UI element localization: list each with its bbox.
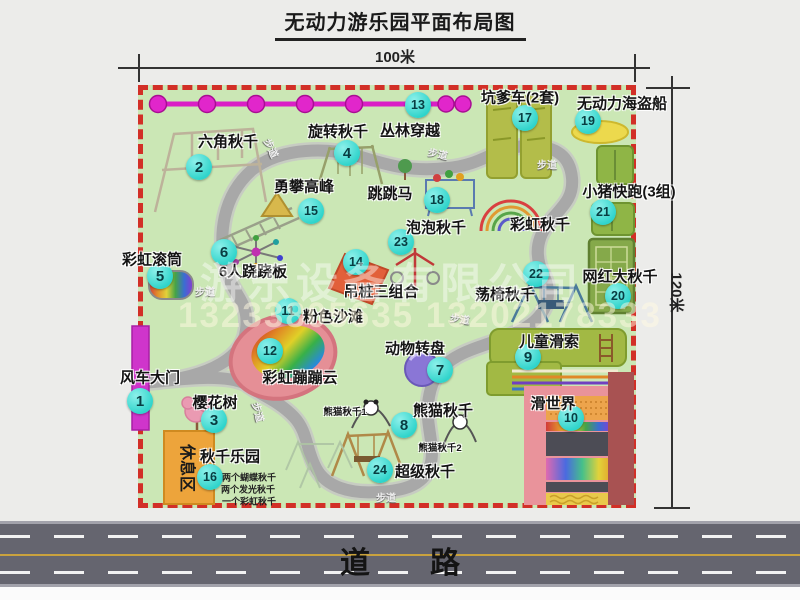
path-label: 步道 — [537, 157, 557, 172]
path-label: 步道 — [195, 284, 215, 299]
map-label: 泡泡秋千 — [406, 217, 466, 238]
map-label: 彩虹秋千 — [510, 214, 570, 235]
badge-14: 14 — [343, 249, 369, 275]
map-label: 熊猫秋千2 — [418, 440, 461, 454]
path-label: 步道 — [376, 490, 396, 505]
badge-12: 12 — [257, 338, 283, 364]
map-label: 一个彩虹秋千 — [222, 495, 276, 508]
badge-11: 11 — [275, 298, 301, 324]
page-title: 无动力游乐园平面布局图 — [0, 6, 800, 41]
map-label: 勇攀高峰 — [274, 176, 334, 197]
map-label: 6人跷跷板 — [219, 261, 287, 282]
map-label: 粉色沙滩 — [303, 306, 363, 327]
map-label: 小猪快跑(3组) — [582, 181, 675, 202]
road-label: 道 路 — [0, 538, 800, 582]
map-label: 无动力海盗船 — [577, 93, 667, 114]
badge-21: 21 — [590, 199, 616, 225]
map-label: 秋千乐园 — [200, 446, 260, 467]
dimension-tick-bottom — [654, 507, 690, 509]
badge-18: 18 — [424, 187, 450, 213]
map-label: 荡椅秋千 — [475, 284, 535, 305]
rest-area-label: 休息区 — [177, 443, 201, 491]
map-label: 吊桩三组合 — [343, 281, 418, 302]
dimension-line-top — [118, 67, 650, 69]
road: 道 路 — [0, 521, 800, 587]
badge-20: 20 — [605, 283, 631, 309]
map-label: 滑世界 — [530, 393, 575, 414]
path-label: 步道 — [449, 309, 471, 327]
road-margin — [0, 587, 800, 600]
map-label: 跳跳马 — [367, 183, 412, 204]
map-label: 网红大秋千 — [582, 266, 657, 287]
map-label: 超级秋千 — [395, 461, 455, 482]
map-label: 动物转盘 — [385, 338, 445, 359]
map-label: 彩虹蹦蹦云 — [262, 367, 337, 388]
map-label: 熊猫秋千1 — [323, 404, 366, 418]
badge-17: 17 — [512, 105, 538, 131]
dimension-tick-left — [138, 54, 140, 82]
map-label: 六角秋千 — [198, 131, 258, 152]
map-label: 坑爹车(2套) — [481, 87, 559, 108]
badge-24: 24 — [367, 457, 393, 483]
map-label: 樱花树 — [192, 392, 237, 413]
badge-16: 16 — [197, 464, 223, 490]
badge-13: 13 — [405, 92, 431, 118]
badge-7: 7 — [427, 357, 453, 383]
badge-2: 2 — [186, 154, 212, 180]
badge-15: 15 — [298, 198, 324, 224]
map-label: 熊猫秋千 — [413, 400, 473, 421]
badge-4: 4 — [334, 140, 360, 166]
map-label: 丛林穿越 — [380, 120, 440, 141]
map-label: 旋转秋千 — [308, 121, 368, 142]
dimension-tick-right — [634, 54, 636, 82]
dimension-label-height: 120米 — [667, 271, 688, 315]
map-label: 彩虹滚筒 — [122, 249, 182, 270]
dimension-label-width: 100米 — [355, 46, 435, 67]
map-label: 儿童滑索 — [519, 331, 579, 352]
badge-1: 1 — [127, 388, 153, 414]
map-label: 风车大门 — [120, 367, 180, 388]
page-title-text: 无动力游乐园平面布局图 — [275, 6, 526, 41]
dimension-tick-top — [646, 87, 690, 89]
plan-canvas: 无动力游乐园平面布局图 100米 120米 道 路 — [0, 0, 800, 600]
